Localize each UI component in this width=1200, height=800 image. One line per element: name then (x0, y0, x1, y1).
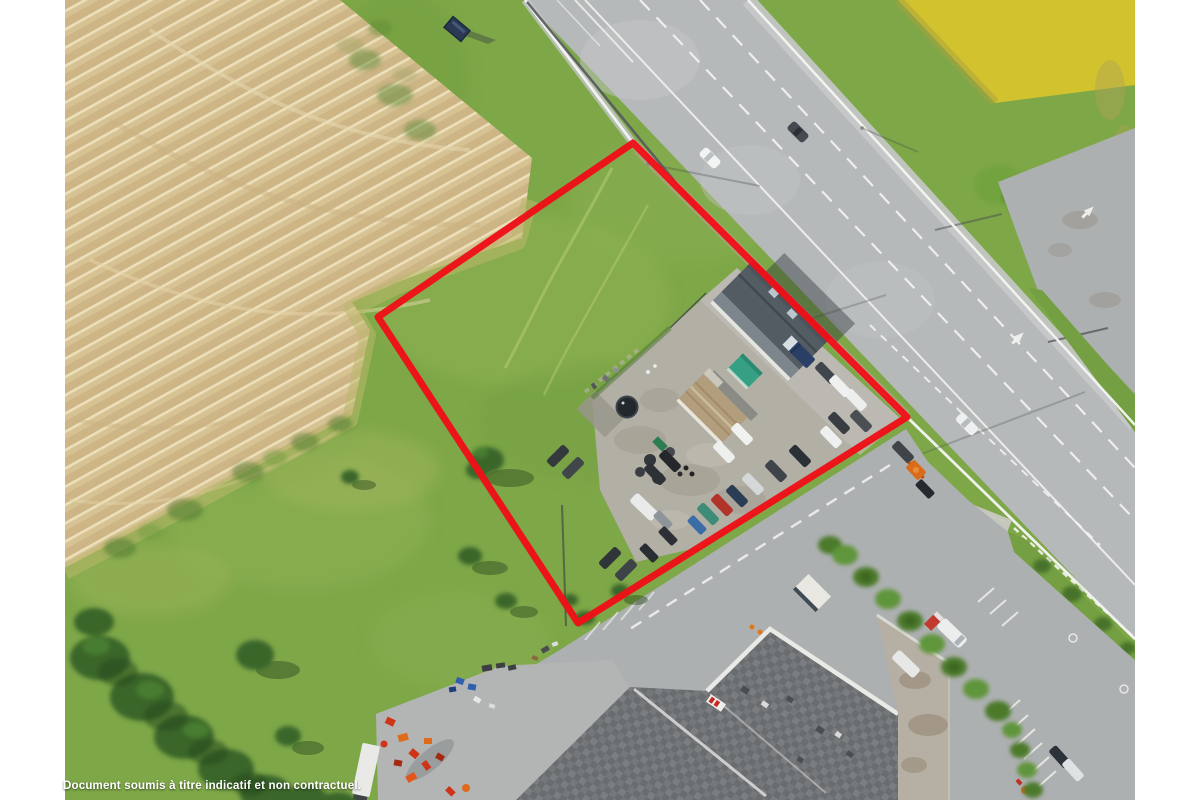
drone-photo (0, 0, 1200, 800)
drone-photo-page: Document soumis à titre indicatif et non… (0, 0, 1200, 800)
disclaimer-text: Document soumis à titre indicatif et non… (63, 780, 361, 792)
trampoline (617, 397, 638, 418)
